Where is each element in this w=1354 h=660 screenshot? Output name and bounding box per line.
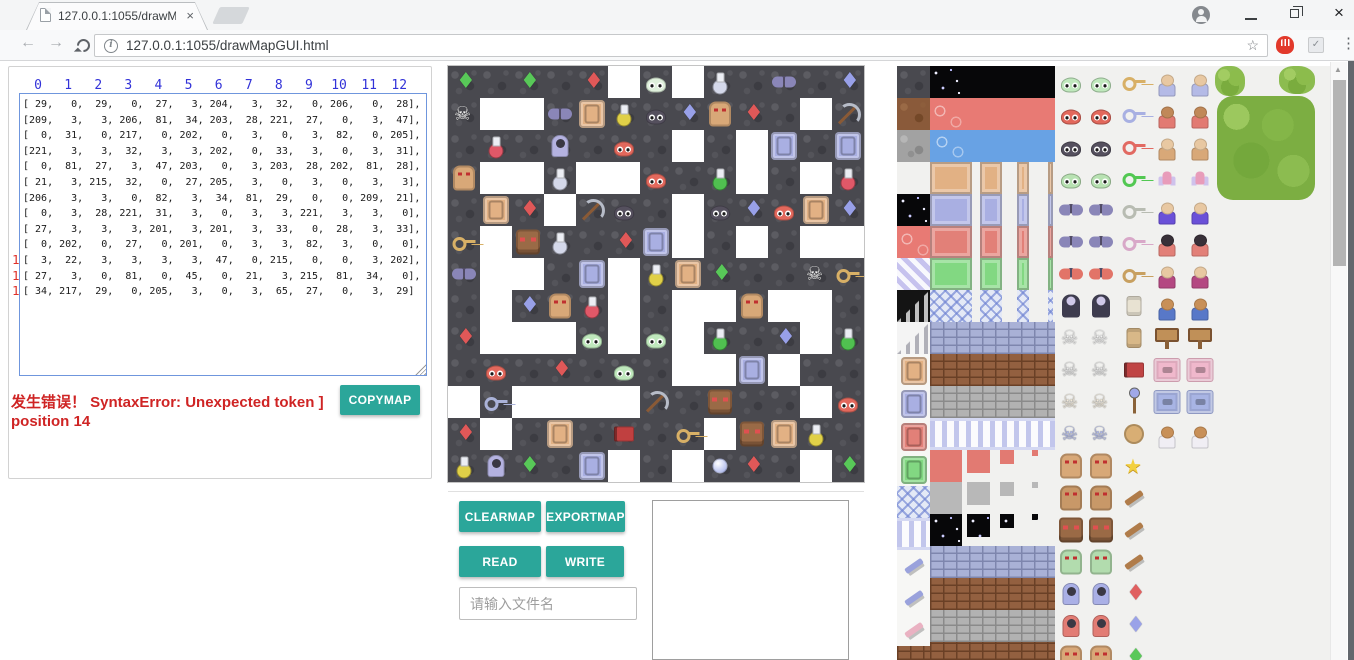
palette-tile[interactable] [897,614,930,646]
map-tile[interactable] [512,226,544,258]
map-tile[interactable] [768,226,800,258]
map-tile[interactable] [736,258,768,290]
map-tile[interactable] [512,418,544,450]
palette-tile[interactable] [1119,547,1149,577]
palette-tile[interactable] [1048,258,1053,290]
map-tile[interactable] [800,98,832,130]
palette-tile[interactable] [897,582,930,614]
map-tile[interactable] [832,418,864,450]
map-tile[interactable] [800,322,832,354]
map-tile[interactable] [704,258,736,290]
palette-tile[interactable] [980,226,1002,258]
map-tile[interactable] [608,162,640,194]
palette-tile[interactable] [1152,99,1182,129]
palette-tile[interactable] [1152,291,1182,321]
palette-tile[interactable] [1048,290,1053,322]
map-tile[interactable] [768,290,800,322]
palette-tile[interactable] [1032,514,1038,520]
palette-tile[interactable] [930,98,1055,130]
map-tile[interactable] [640,66,672,98]
map-tile[interactable] [480,354,512,386]
palette-tile[interactable] [1119,355,1149,385]
map-tile[interactable] [704,194,736,226]
map-tile[interactable] [736,66,768,98]
palette-tile[interactable] [1087,259,1115,289]
map-tile[interactable] [608,386,640,418]
map-tile[interactable] [512,290,544,322]
back-icon[interactable]: ← [20,34,36,52]
map-tile[interactable] [448,226,480,258]
palette-tile[interactable] [897,518,930,550]
map-tile[interactable] [768,450,800,482]
map-tile[interactable] [704,162,736,194]
map-tile[interactable] [832,322,864,354]
map-tile[interactable] [768,354,800,386]
map-tile[interactable] [832,98,864,130]
palette-tile[interactable] [1057,99,1085,129]
copymap-button[interactable]: COPYMAP [340,385,420,415]
palette-tile[interactable] [897,550,930,582]
map-tile[interactable] [672,66,704,98]
map-tile[interactable] [640,162,672,194]
map-tile[interactable] [544,226,576,258]
palette-tile[interactable] [1057,291,1085,321]
palette-tile[interactable] [1057,163,1085,193]
map-tile[interactable] [512,98,544,130]
map-tile[interactable] [576,290,608,322]
palette-tile[interactable] [1017,258,1029,290]
palette-tile[interactable] [1057,611,1085,641]
palette-tile[interactable] [930,610,1055,642]
read-button[interactable]: READ [459,546,541,577]
clearmap-button[interactable]: CLEARMAP [459,501,541,532]
tileset-palette[interactable] [897,66,1330,660]
map-tile[interactable] [544,98,576,130]
palette-tile[interactable] [897,322,930,354]
map-tile[interactable] [480,258,512,290]
palette-tile[interactable] [1185,323,1215,353]
palette-tile[interactable] [1119,579,1149,609]
palette-tile[interactable] [897,290,930,322]
palette-tile[interactable] [1087,323,1115,353]
palette-tile[interactable] [1057,355,1085,385]
scrollbar-up-arrow[interactable]: ▲ [1334,65,1342,74]
map-tile[interactable] [512,450,544,482]
palette-tile[interactable] [1087,611,1115,641]
palette-tile[interactable] [1048,162,1053,194]
tab-close-icon[interactable]: × [186,8,194,23]
map-tile[interactable] [672,258,704,290]
palette-tile[interactable] [1152,227,1182,257]
palette-tile[interactable] [1185,355,1215,385]
map-tile[interactable] [832,162,864,194]
map-tile[interactable] [768,66,800,98]
window-close-button[interactable]: × [1334,3,1344,23]
map-tile[interactable] [800,354,832,386]
palette-tile[interactable] [1119,611,1149,641]
map-tile[interactable] [704,226,736,258]
map-tile[interactable] [736,354,768,386]
palette-tile[interactable] [930,578,1055,610]
map-tile[interactable] [480,418,512,450]
map-tile[interactable] [608,98,640,130]
map-tile[interactable] [768,130,800,162]
map-tile[interactable] [448,450,480,482]
map-tile[interactable] [800,290,832,322]
palette-tile[interactable] [897,66,930,98]
map-tile[interactable] [672,162,704,194]
palette-tile[interactable] [1087,227,1115,257]
map-tile[interactable] [736,226,768,258]
palette-tile[interactable] [1119,131,1149,161]
palette-tile[interactable] [930,194,972,226]
palette-tile[interactable] [1152,259,1182,289]
map-tile[interactable] [832,226,864,258]
palette-tile[interactable] [1119,323,1149,353]
map-tile[interactable] [800,226,832,258]
palette-tile[interactable] [1119,99,1149,129]
palette-tile[interactable] [1185,387,1215,417]
palette-tile[interactable] [1185,99,1215,129]
map-tile[interactable] [512,354,544,386]
map-tile[interactable] [832,290,864,322]
map-tile[interactable] [800,162,832,194]
map-tile[interactable] [832,66,864,98]
map-tile[interactable] [736,322,768,354]
map-tile[interactable] [800,386,832,418]
map-tile[interactable] [480,450,512,482]
map-tile[interactable] [448,98,480,130]
map-tile[interactable] [672,194,704,226]
palette-tile[interactable] [1185,419,1215,449]
palette-tile[interactable] [1119,643,1149,660]
map-tile[interactable] [448,130,480,162]
palette-tile[interactable] [930,514,962,546]
map-tile[interactable] [704,354,736,386]
map-tile[interactable] [704,98,736,130]
map-tile[interactable] [800,194,832,226]
palette-tile[interactable] [1119,259,1149,289]
map-tile[interactable] [608,194,640,226]
palette-tile[interactable] [897,354,930,387]
map-tile[interactable] [736,194,768,226]
map-tile[interactable] [800,258,832,290]
map-tile[interactable] [672,354,704,386]
map-tile[interactable] [704,386,736,418]
palette-tile[interactable] [1185,259,1215,289]
palette-tile[interactable] [1032,450,1038,456]
palette-tile[interactable] [897,130,930,162]
palette-tile[interactable] [1185,163,1215,193]
palette-tile[interactable] [1119,195,1149,225]
map-tile[interactable] [704,450,736,482]
palette-tile[interactable] [1185,67,1215,97]
map-tile[interactable] [832,450,864,482]
map-tile[interactable] [832,258,864,290]
palette-tile[interactable] [1119,451,1149,481]
palette-tile[interactable] [1087,579,1115,609]
palette-tile[interactable] [1087,643,1115,660]
map-tile[interactable] [544,194,576,226]
map-tile[interactable] [736,290,768,322]
palette-tile[interactable] [1048,226,1053,258]
map-tile[interactable] [448,386,480,418]
map-tile[interactable] [512,194,544,226]
palette-tile[interactable] [897,226,930,258]
url-text[interactable]: 127.0.0.1:1055/drawMapGUI.html [126,38,329,53]
palette-tile[interactable] [1057,451,1085,481]
map-tile[interactable] [512,162,544,194]
palette-tile[interactable] [1017,194,1029,226]
palette-tile[interactable] [1279,66,1315,94]
map-tile[interactable] [576,258,608,290]
map-tile[interactable] [768,322,800,354]
palette-tile[interactable] [930,162,972,194]
map-tile[interactable] [448,66,480,98]
menu-dots-icon[interactable]: ⋮ [1341,34,1354,52]
map-tile[interactable] [640,130,672,162]
forward-icon[interactable]: → [48,34,64,52]
map-tile[interactable] [480,322,512,354]
map-tile[interactable] [832,194,864,226]
palette-tile[interactable] [930,386,1055,418]
reload-icon[interactable] [74,36,92,54]
palette-tile[interactable] [1057,515,1085,545]
map-tile[interactable] [800,130,832,162]
map-tile[interactable] [544,66,576,98]
palette-tile[interactable] [1087,387,1115,417]
map-tile[interactable] [544,450,576,482]
palette-tile[interactable] [1057,227,1085,257]
adblock-extension-icon[interactable] [1276,36,1294,54]
palette-tile[interactable] [1000,514,1014,528]
palette-tile[interactable] [1217,96,1315,200]
palette-tile[interactable] [930,482,962,514]
map-tile[interactable] [576,322,608,354]
palette-tile[interactable] [1057,483,1085,513]
map-tile[interactable] [640,450,672,482]
map-tile[interactable] [608,450,640,482]
map-tile[interactable] [544,130,576,162]
palette-tile[interactable] [930,450,962,482]
map-tile[interactable] [672,418,704,450]
page-info-icon[interactable]: i [104,39,118,53]
map-tile[interactable] [480,98,512,130]
map-tile[interactable] [448,354,480,386]
palette-tile[interactable] [1087,547,1115,577]
map-tile[interactable] [736,450,768,482]
map-tile[interactable] [512,258,544,290]
palette-tile[interactable] [930,418,1055,450]
palette-tile[interactable] [1057,323,1085,353]
palette-tile[interactable] [897,194,930,226]
palette-tile[interactable] [1057,67,1085,97]
map-tile[interactable] [704,322,736,354]
map-tile[interactable] [736,98,768,130]
map-tile[interactable] [672,226,704,258]
map-tile[interactable] [800,450,832,482]
palette-tile[interactable] [1017,290,1029,322]
palette-tile[interactable] [1057,131,1085,161]
map-tile[interactable] [832,130,864,162]
map-tile[interactable] [544,418,576,450]
map-tile[interactable] [768,98,800,130]
map-tile[interactable] [608,418,640,450]
map-tile[interactable] [576,354,608,386]
palette-tile[interactable] [897,646,930,660]
palette-tile[interactable] [980,258,1002,290]
map-tile[interactable] [640,386,672,418]
map-tile[interactable] [832,386,864,418]
palette-tile[interactable] [1119,515,1149,545]
palette-tile[interactable] [1152,67,1182,97]
matrix-textarea[interactable] [19,93,427,376]
map-tile[interactable] [576,450,608,482]
palette-tile[interactable] [1017,162,1029,194]
write-button[interactable]: WRITE [546,546,624,577]
palette-tile[interactable] [1087,419,1115,449]
palette-tile[interactable] [967,482,990,505]
map-tile[interactable] [480,386,512,418]
map-tile[interactable] [608,258,640,290]
scrollbar-thumb[interactable] [1333,80,1346,266]
palette-tile[interactable] [1152,195,1182,225]
map-tile[interactable] [704,290,736,322]
map-tile[interactable] [448,290,480,322]
map-tile[interactable] [576,226,608,258]
map-tile[interactable] [768,418,800,450]
palette-tile[interactable] [930,354,1055,386]
map-tile[interactable] [608,290,640,322]
palette-tile[interactable] [1057,387,1085,417]
palette-tile[interactable] [980,194,1002,226]
palette-tile[interactable] [1185,291,1215,321]
palette-tile[interactable] [1087,67,1115,97]
address-bar[interactable]: i 127.0.0.1:1055/drawMapGUI.html ☆ [94,34,1268,57]
map-tile[interactable] [800,66,832,98]
palette-tile[interactable] [1185,195,1215,225]
bookmark-star-icon[interactable]: ☆ [1246,37,1259,54]
palette-tile[interactable] [1119,163,1149,193]
palette-tile[interactable] [1087,515,1115,545]
map-tile[interactable] [768,162,800,194]
palette-tile[interactable] [967,450,990,473]
map-tile[interactable] [608,130,640,162]
map-tile[interactable] [448,194,480,226]
map-tile[interactable] [672,130,704,162]
map-tile[interactable] [576,130,608,162]
palette-tile[interactable] [1000,482,1014,496]
palette-tile[interactable] [1119,291,1149,321]
map-tile[interactable] [544,322,576,354]
map-tile[interactable] [640,226,672,258]
map-tile[interactable] [640,258,672,290]
map-tile[interactable] [640,98,672,130]
palette-tile[interactable] [1119,419,1149,449]
palette-tile[interactable] [1087,99,1115,129]
map-tile[interactable] [768,386,800,418]
map-tile[interactable] [704,66,736,98]
palette-tile[interactable] [1152,131,1182,161]
palette-tile[interactable] [1087,163,1115,193]
map-tile[interactable] [544,386,576,418]
minimize-button[interactable] [1245,18,1257,20]
palette-tile[interactable] [1152,163,1182,193]
map-tile[interactable] [480,162,512,194]
palette-tile[interactable] [1057,547,1085,577]
map-tile[interactable] [832,354,864,386]
map-tile[interactable] [576,194,608,226]
map-tile[interactable] [640,194,672,226]
map-tile[interactable] [672,386,704,418]
map-tile[interactable] [512,66,544,98]
palette-tile[interactable] [1185,227,1215,257]
map-tile[interactable] [768,194,800,226]
map-tile[interactable] [672,450,704,482]
map-tile[interactable] [672,98,704,130]
palette-tile[interactable] [1057,259,1085,289]
palette-tile[interactable] [1087,483,1115,513]
palette-tile[interactable] [1057,579,1085,609]
map-tile[interactable] [512,130,544,162]
map-tile[interactable] [704,418,736,450]
palette-tile[interactable] [1057,195,1085,225]
map-tile[interactable] [448,162,480,194]
map-tile[interactable] [448,418,480,450]
map-tile[interactable] [448,322,480,354]
palette-tile[interactable] [1152,387,1182,417]
palette-tile[interactable] [1057,643,1085,660]
palette-tile[interactable] [930,546,1055,578]
map-tile[interactable] [736,130,768,162]
palette-tile[interactable] [1119,67,1149,97]
map-tile[interactable] [576,418,608,450]
palette-tile[interactable] [897,258,930,290]
restore-button[interactable] [1290,9,1299,18]
palette-tile[interactable] [897,453,930,486]
check-extension-icon[interactable]: ✓ [1308,37,1324,53]
map-tile[interactable] [640,354,672,386]
palette-tile[interactable] [897,387,930,420]
map-tile[interactable] [576,386,608,418]
palette-tile[interactable] [1087,355,1115,385]
map-tile[interactable] [672,290,704,322]
filename-input[interactable] [459,587,637,620]
palette-tile[interactable] [1048,194,1053,226]
palette-tile[interactable] [980,290,1002,322]
palette-tile[interactable] [897,98,930,130]
palette-tile[interactable] [1032,482,1038,488]
map-tile[interactable] [480,194,512,226]
page-scrollbar[interactable]: ▲ [1330,62,1347,660]
map-tile[interactable] [640,418,672,450]
palette-tile[interactable] [930,226,972,258]
palette-tile[interactable] [897,486,930,518]
map-tile[interactable] [672,322,704,354]
map-tile[interactable] [544,354,576,386]
palette-tile[interactable] [930,642,1055,660]
profile-icon[interactable] [1192,6,1210,24]
palette-tile[interactable] [1087,131,1115,161]
map-tile[interactable] [480,226,512,258]
palette-tile[interactable] [930,322,1055,354]
map-tile[interactable] [608,226,640,258]
map-tile[interactable] [608,322,640,354]
palette-tile[interactable] [930,290,972,322]
exportmap-button[interactable]: EXPORTMAP [546,501,625,532]
map-tile[interactable] [640,322,672,354]
palette-tile[interactable] [1119,483,1149,513]
